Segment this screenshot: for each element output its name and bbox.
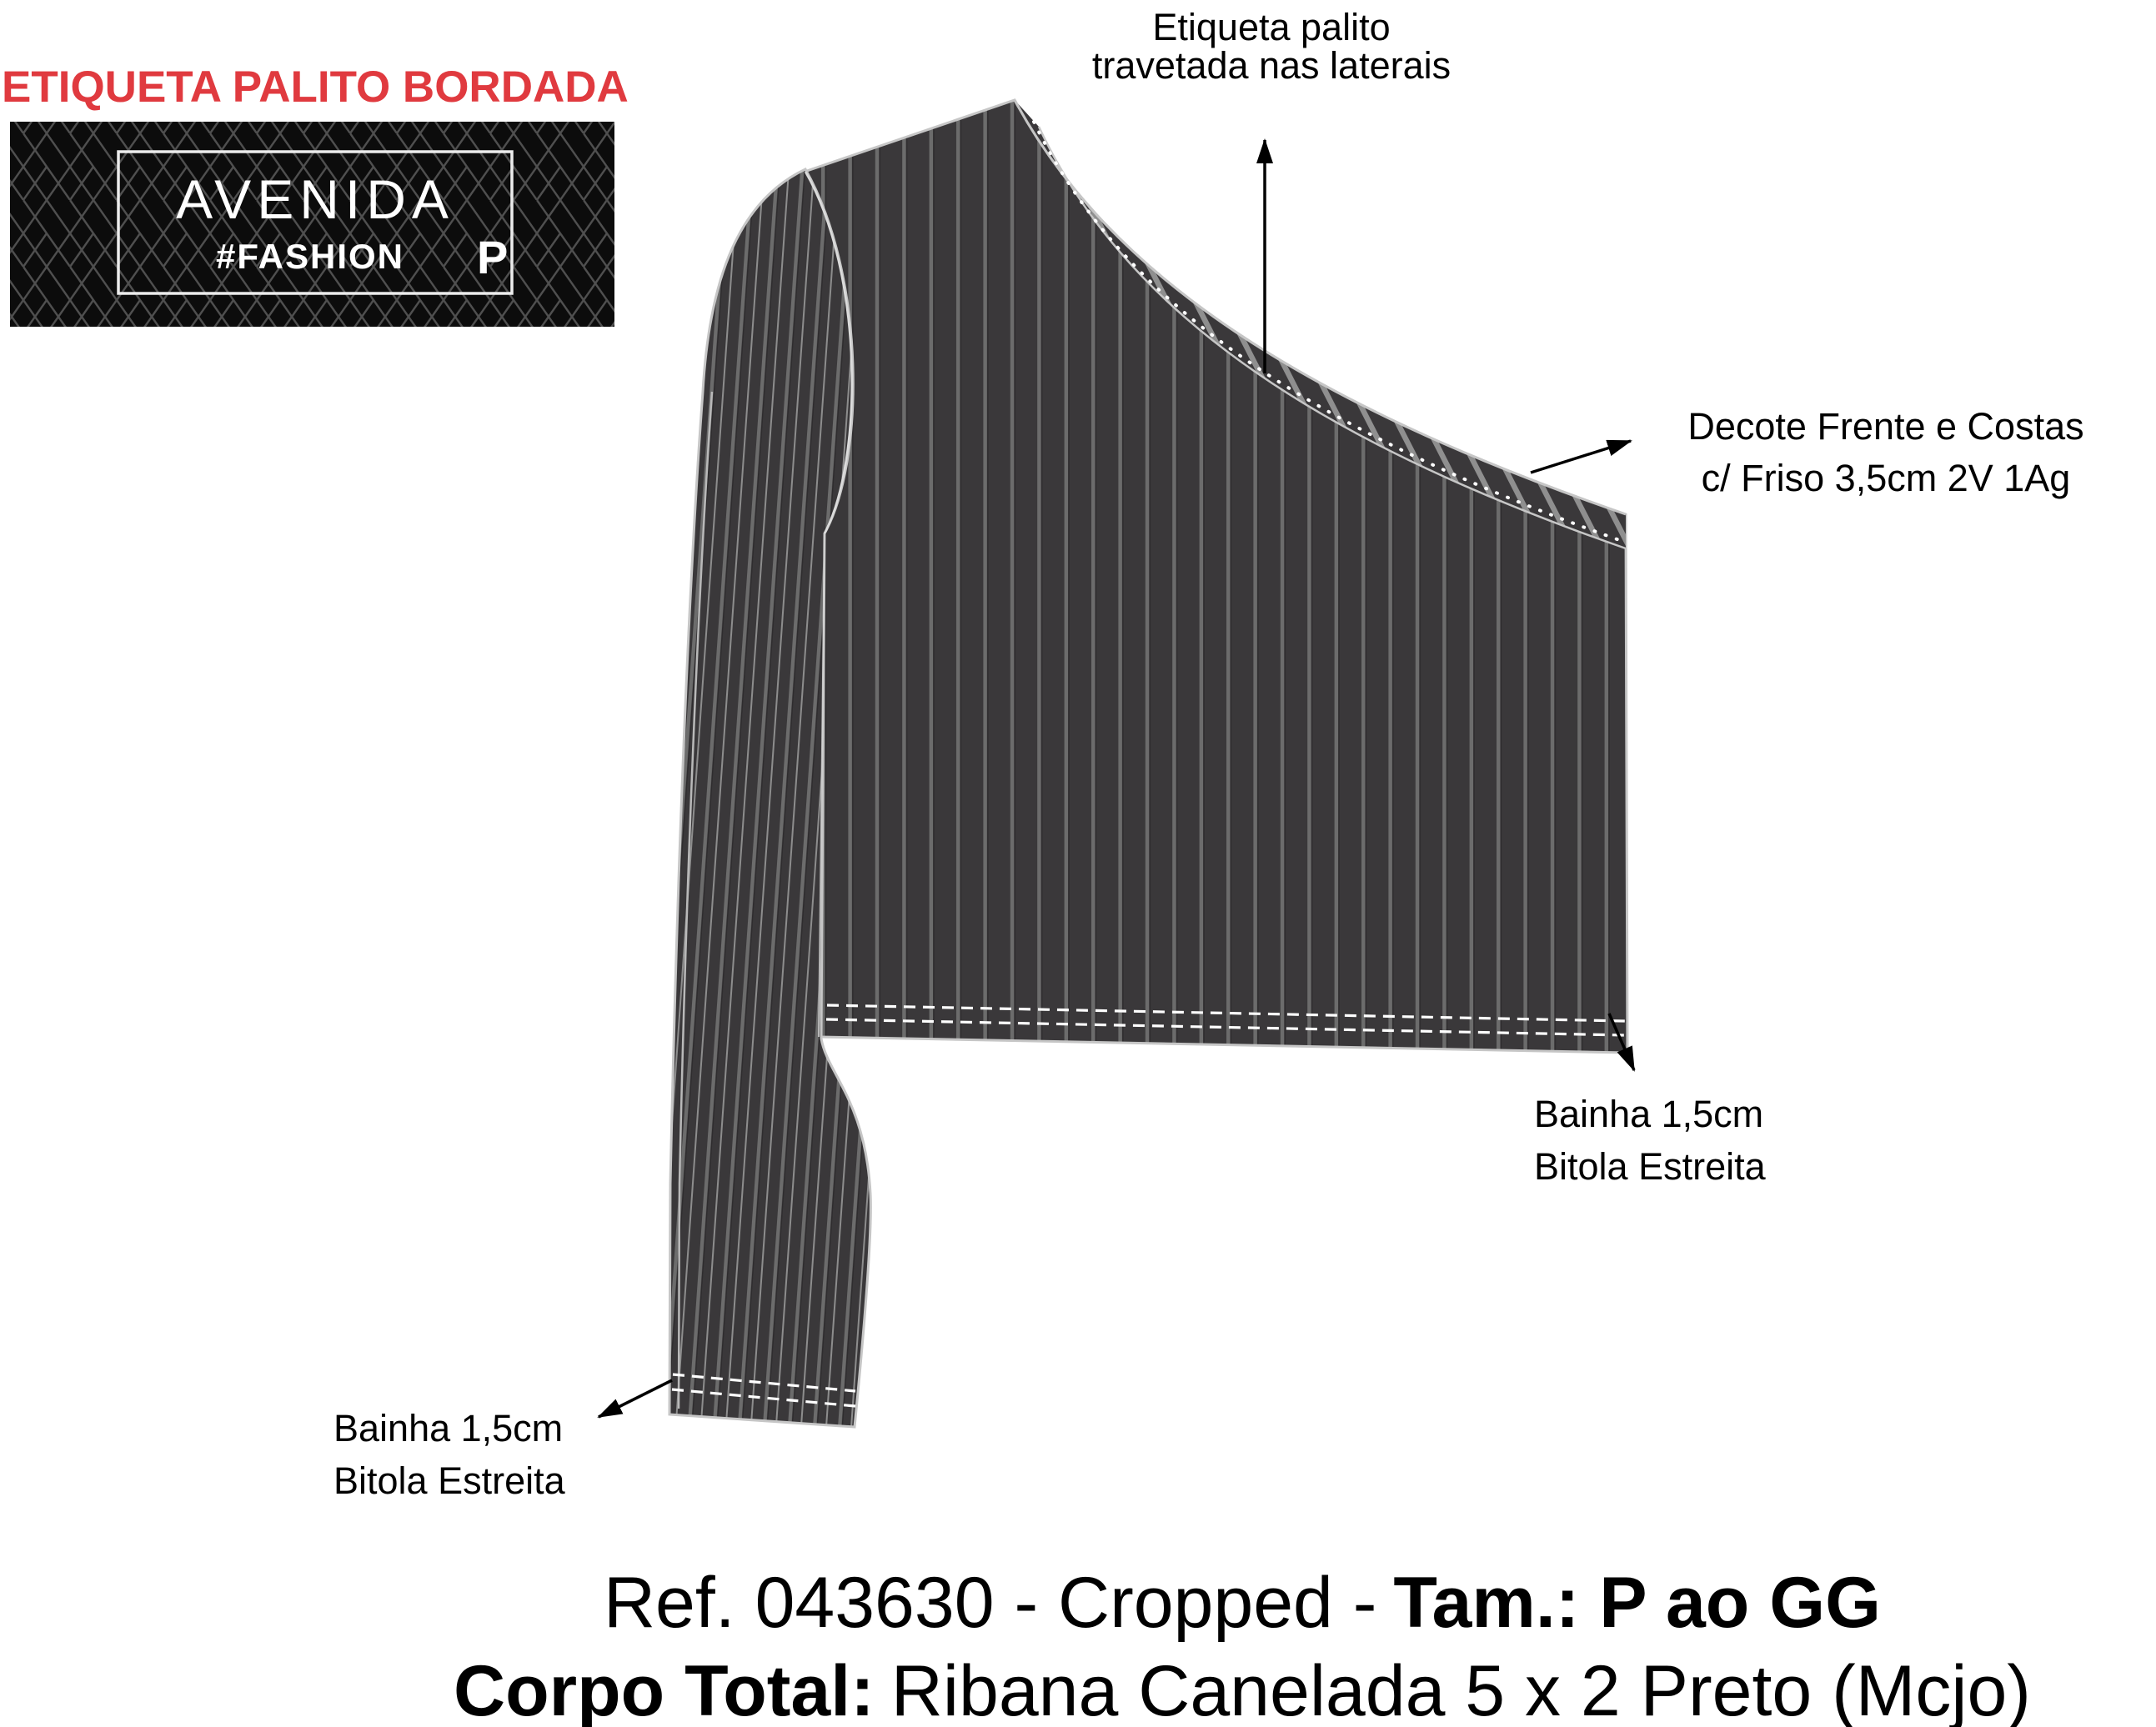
annotation-top-line1: Etiqueta palito: [1152, 6, 1390, 48]
caption-line2: Corpo Total:Ribana Canelada 5 x 2 Preto …: [454, 1651, 2031, 1727]
annotation-neckline-line2: c/ Friso 3,5cm 2V 1Ag: [1702, 457, 2071, 499]
annotation-hem-right-line1: Bainha 1,5cm: [1534, 1093, 1763, 1135]
caption-line1: Ref. 043630 - Cropped -Tam.: P ao GG: [604, 1563, 1881, 1643]
caption-material-label: Corpo Total:: [454, 1651, 875, 1727]
annotation-hem-left-line1: Bainha 1,5cm: [333, 1407, 563, 1449]
garment-drawing: [669, 100, 1627, 1427]
annotation-hem-right: Bainha 1,5cm Bitola Estreita: [1534, 1093, 1767, 1188]
reference-caption: Ref. 043630 - Cropped -Tam.: P ao GG Cor…: [454, 1563, 2031, 1727]
arrow-hem-left: [599, 1380, 672, 1417]
page-title: ETIQUETA PALITO BORDADA: [2, 63, 629, 112]
annotation-top-label: Etiqueta palito travetada nas laterais: [1092, 6, 1451, 87]
spec-sheet: ETIQUETA PALITO BORDADA AVENIDA #FASHION…: [0, 0, 2156, 1727]
arrow-neckline: [1531, 441, 1631, 473]
garment-body-panel: [802, 100, 1627, 1053]
annotation-top-line2: travetada nas laterais: [1092, 44, 1451, 87]
annotation-hem-left-line2: Bitola Estreita: [333, 1459, 566, 1502]
brand-label-swatch: AVENIDA #FASHION P: [10, 122, 614, 327]
annotation-neckline: Decote Frente e Costas c/ Friso 3,5cm 2V…: [1687, 405, 2083, 499]
caption-material-value: Ribana Canelada 5 x 2 Preto (Mcjo): [891, 1651, 2031, 1727]
annotation-hem-left: Bainha 1,5cm Bitola Estreita: [333, 1407, 566, 1502]
caption-size-range: Tam.: P ao GG: [1393, 1563, 1881, 1643]
label-hashtag-text: #FASHION: [216, 237, 404, 276]
annotation-hem-right-line2: Bitola Estreita: [1534, 1145, 1767, 1188]
annotation-neckline-line1: Decote Frente e Costas: [1687, 405, 2083, 448]
caption-ref: Ref. 043630 - Cropped -: [604, 1563, 1376, 1643]
label-brand-text: AVENIDA: [176, 168, 454, 230]
label-size-letter: P: [477, 231, 508, 283]
